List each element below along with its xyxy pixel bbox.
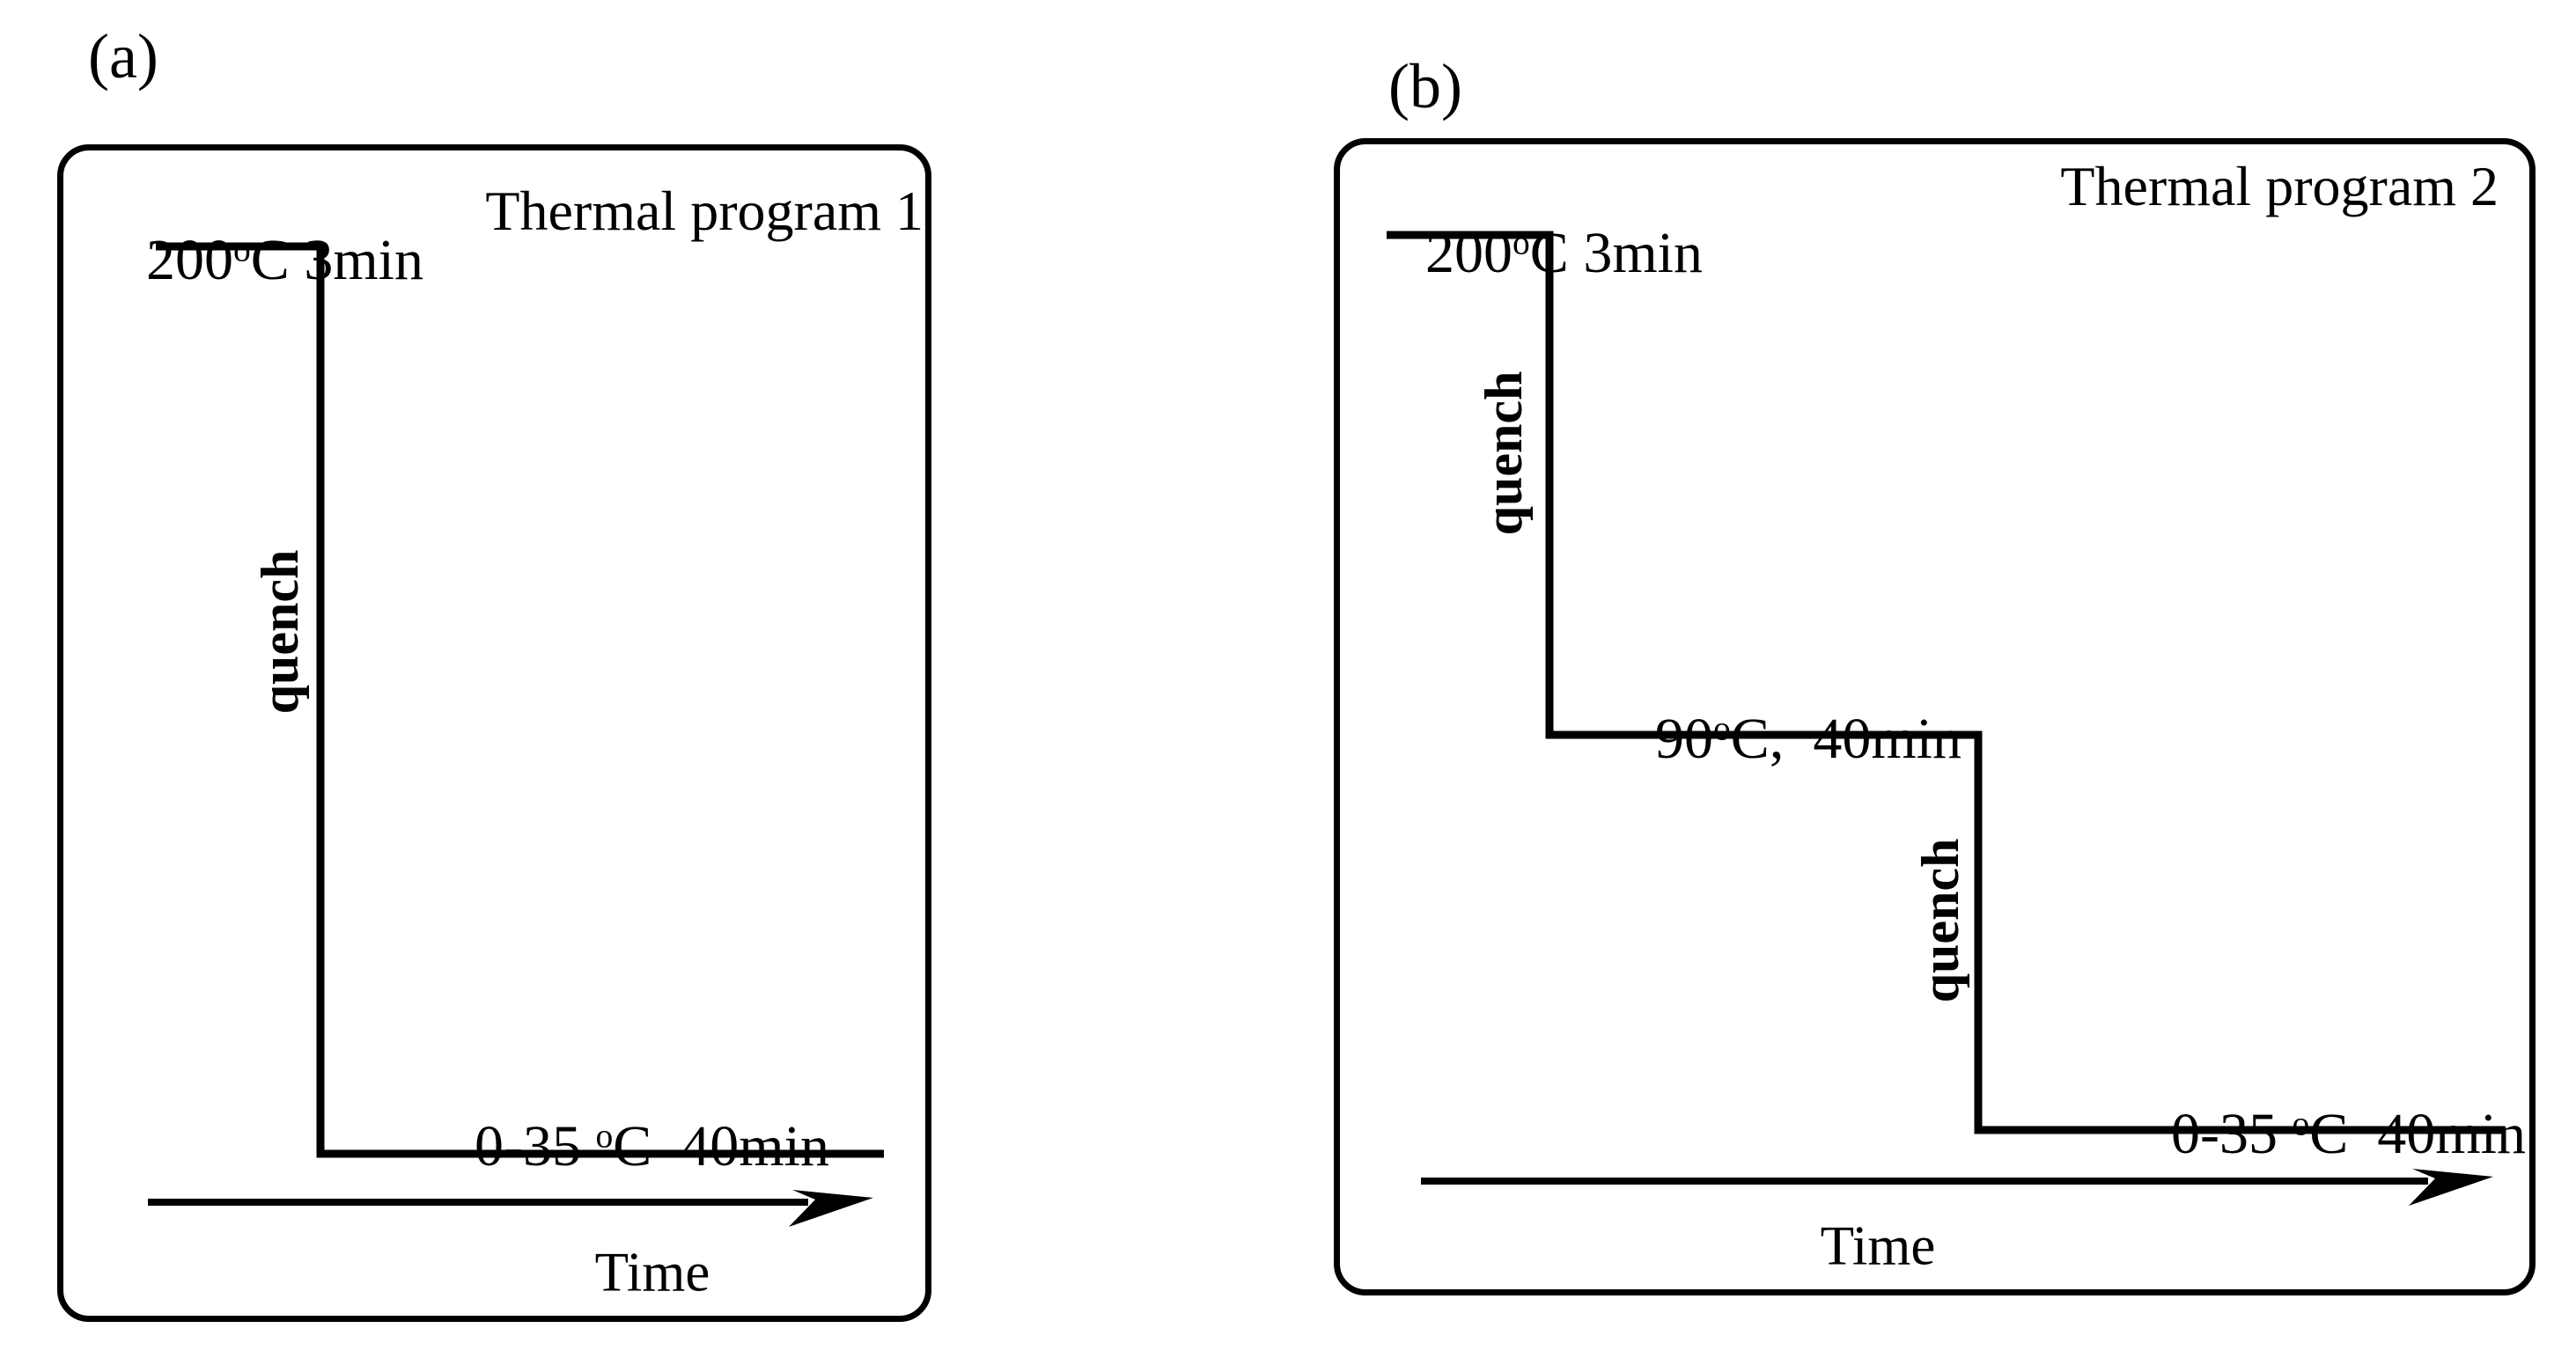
panel-b-middle-step-degree-sup: o <box>1713 708 1731 747</box>
panel-a-bottom-step-unit: C 40min <box>613 1114 829 1178</box>
panel-b-top-step-value: 200 <box>1425 221 1512 285</box>
panel-a-title: Thermal program 1 <box>485 183 924 239</box>
panel-b-top-step-unit: C 3min <box>1530 221 1703 285</box>
panel-b-quench1-label: quench <box>1477 371 1530 536</box>
panel-b-middle-step-unit: C, 40min <box>1731 707 1961 771</box>
figure-canvas: (a) 200oC 3min Thermal program 1 quench … <box>0 0 2576 1365</box>
panel-b-bottom-step-unit: C 40min <box>2309 1102 2526 1166</box>
panel-a-label: (a) <box>88 25 158 88</box>
panel-a-top-step-value: 200 <box>146 228 233 292</box>
panel-b-top-step-degree-sup: o <box>1512 223 1530 261</box>
panel-b-bottom-step-label: 0-35 oC 40min <box>2113 1047 2526 1222</box>
panel-a-top-step-label: 200oC 3min <box>88 173 423 348</box>
panel-b-time-axis-label: Time <box>1821 1219 1936 1274</box>
panel-a-bottom-step-label: 0-35 oC 40min <box>416 1060 829 1234</box>
panel-b-middle-step-label: 90oC, 40min <box>1597 652 1961 826</box>
panel-b-label: (b) <box>1388 55 1462 118</box>
panel-a-quench-label: quench <box>254 550 306 715</box>
panel-a-bottom-step-value: 0-35 <box>475 1114 595 1178</box>
panel-b-middle-step-value: 90 <box>1655 707 1713 771</box>
panel-b-bottom-step-degree-sup: o <box>2292 1104 2309 1142</box>
panel-b-title: Thermal program 2 <box>2060 158 2499 215</box>
panel-b-bottom-step-value: 0-35 <box>2171 1102 2292 1166</box>
panel-b-quench2-label: quench <box>1914 839 1967 1003</box>
panel-b-top-step-label: 200oC 3min <box>1367 166 1703 341</box>
panel-a-time-axis-label: Time <box>595 1245 710 1301</box>
panel-a-top-step-unit: C 3min <box>251 228 423 292</box>
panel-a-top-step-degree-sup: o <box>233 230 251 268</box>
panel-a-bottom-step-degree-sup: o <box>595 1116 613 1155</box>
